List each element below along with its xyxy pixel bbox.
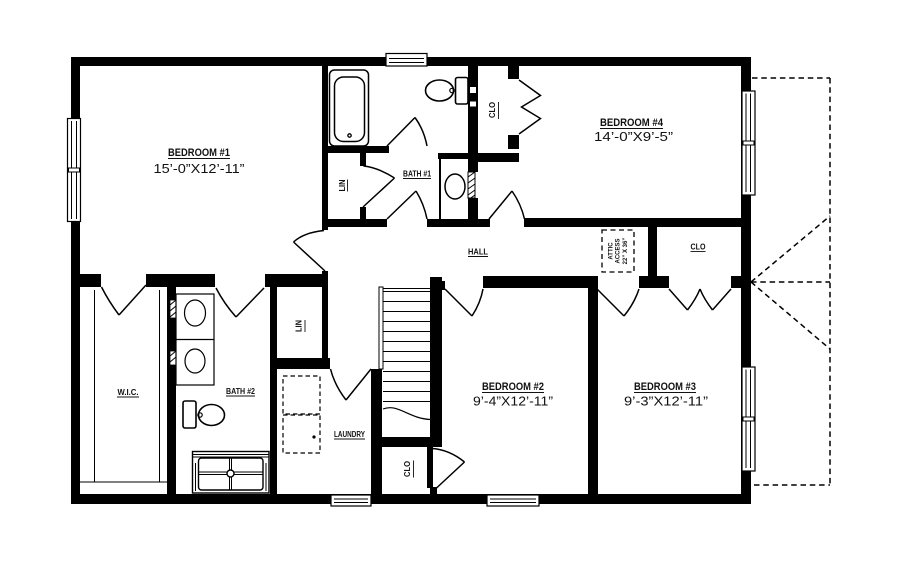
svg-text:CLO: CLO [488,102,497,118]
svg-text:22” X 36”: 22” X 36” [623,238,629,265]
svg-text:CLO: CLO [691,243,706,252]
svg-text:LIN: LIN [338,179,347,191]
svg-text:BEDROOM #3: BEDROOM #3 [634,381,696,393]
svg-text:BEDROOM #1: BEDROOM #1 [168,147,230,159]
svg-text:ATTIC: ATTIC [609,242,615,260]
svg-text:BEDROOM #4: BEDROOM #4 [600,117,664,129]
svg-text:14’-0”X9’-5”: 14’-0”X9’-5” [594,129,673,144]
svg-text:LAUNDRY: LAUNDRY [334,430,366,439]
svg-text:BATH #2: BATH #2 [226,387,256,396]
svg-text:ACCESS: ACCESS [616,238,622,263]
svg-text:9’-4”X12’-11”: 9’-4”X12’-11” [473,394,553,409]
svg-text:15’-0”X12’-11”: 15’-0”X12’-11” [154,161,245,176]
svg-text:LIN: LIN [295,320,304,332]
svg-text:HALL: HALL [468,248,488,257]
svg-text:BEDROOM #2: BEDROOM #2 [482,381,544,393]
svg-text:BATH #1: BATH #1 [403,170,432,179]
svg-text:CLO: CLO [403,461,412,477]
svg-text:9’-3”X12’-11”: 9’-3”X12’-11” [624,394,708,409]
svg-text:W.I.C.: W.I.C. [118,388,139,397]
